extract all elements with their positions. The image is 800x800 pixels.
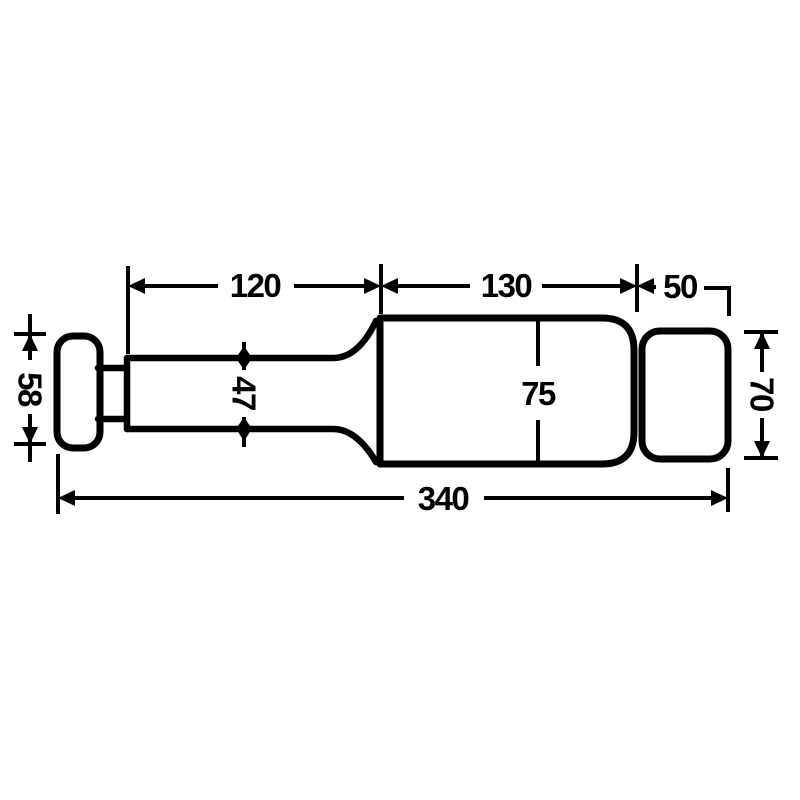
end-cylinder-outline xyxy=(642,331,728,459)
dim-label-end-diameter: 70 xyxy=(744,377,781,411)
body-outline xyxy=(380,318,634,464)
shaft-bottom-edge xyxy=(127,429,376,462)
arrowhead xyxy=(236,346,252,370)
dim-label-shaft-length: 120 xyxy=(230,267,281,304)
arrowhead xyxy=(236,417,252,441)
arrowhead xyxy=(381,278,398,294)
arrowhead xyxy=(711,490,728,506)
arrowhead xyxy=(128,278,145,294)
part-outline xyxy=(57,318,728,464)
dim-label-cap-diameter: 58 xyxy=(12,372,49,407)
arrowhead xyxy=(58,490,75,506)
dim-label-shaft-diameter: 47 xyxy=(226,376,263,410)
arrowhead xyxy=(364,278,381,294)
shaft-top-edge xyxy=(127,321,376,358)
dim-label-body-length: 130 xyxy=(481,267,532,304)
arrowhead xyxy=(22,334,38,351)
dimension-cap-diameter: 58 xyxy=(12,314,49,462)
arrowhead xyxy=(22,427,38,444)
dimension-end-diameter: 70 xyxy=(744,332,781,458)
arrowhead xyxy=(620,278,637,294)
dim-label-overall-length: 340 xyxy=(418,480,469,517)
part-dimension-diagram: 120 130 50 75 47 xyxy=(0,0,800,800)
cap-outline xyxy=(57,336,100,448)
dim-label-end-length: 50 xyxy=(663,268,697,305)
dim-leader-50-elbow xyxy=(704,288,729,316)
arrowhead xyxy=(754,441,770,458)
dim-label-body-diameter: 75 xyxy=(521,375,556,412)
technical-drawing: 120 130 50 75 47 xyxy=(0,0,800,800)
arrowhead xyxy=(754,332,770,349)
